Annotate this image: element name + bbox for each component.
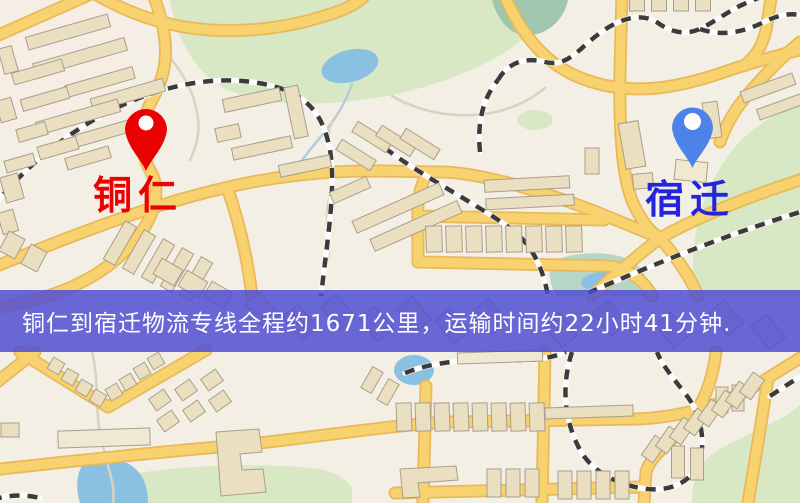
map-image — [0, 0, 800, 503]
logistics-route-map: 铜仁 宿迁 铜仁到宿迁物流专线全程约1671公里，运输时间约22小时41分钟. — [0, 0, 800, 503]
destination-pin-icon — [672, 107, 713, 168]
route-info-text: 铜仁到宿迁物流专线全程约1671公里，运输时间约22小时41分钟. — [0, 304, 731, 338]
destination-city-label: 宿迁 — [645, 181, 735, 220]
origin-pin-icon — [125, 109, 167, 171]
origin-city-label: 铜仁 — [93, 177, 183, 216]
route-info-banner: 铜仁到宿迁物流专线全程约1671公里，运输时间约22小时41分钟. — [0, 290, 800, 352]
